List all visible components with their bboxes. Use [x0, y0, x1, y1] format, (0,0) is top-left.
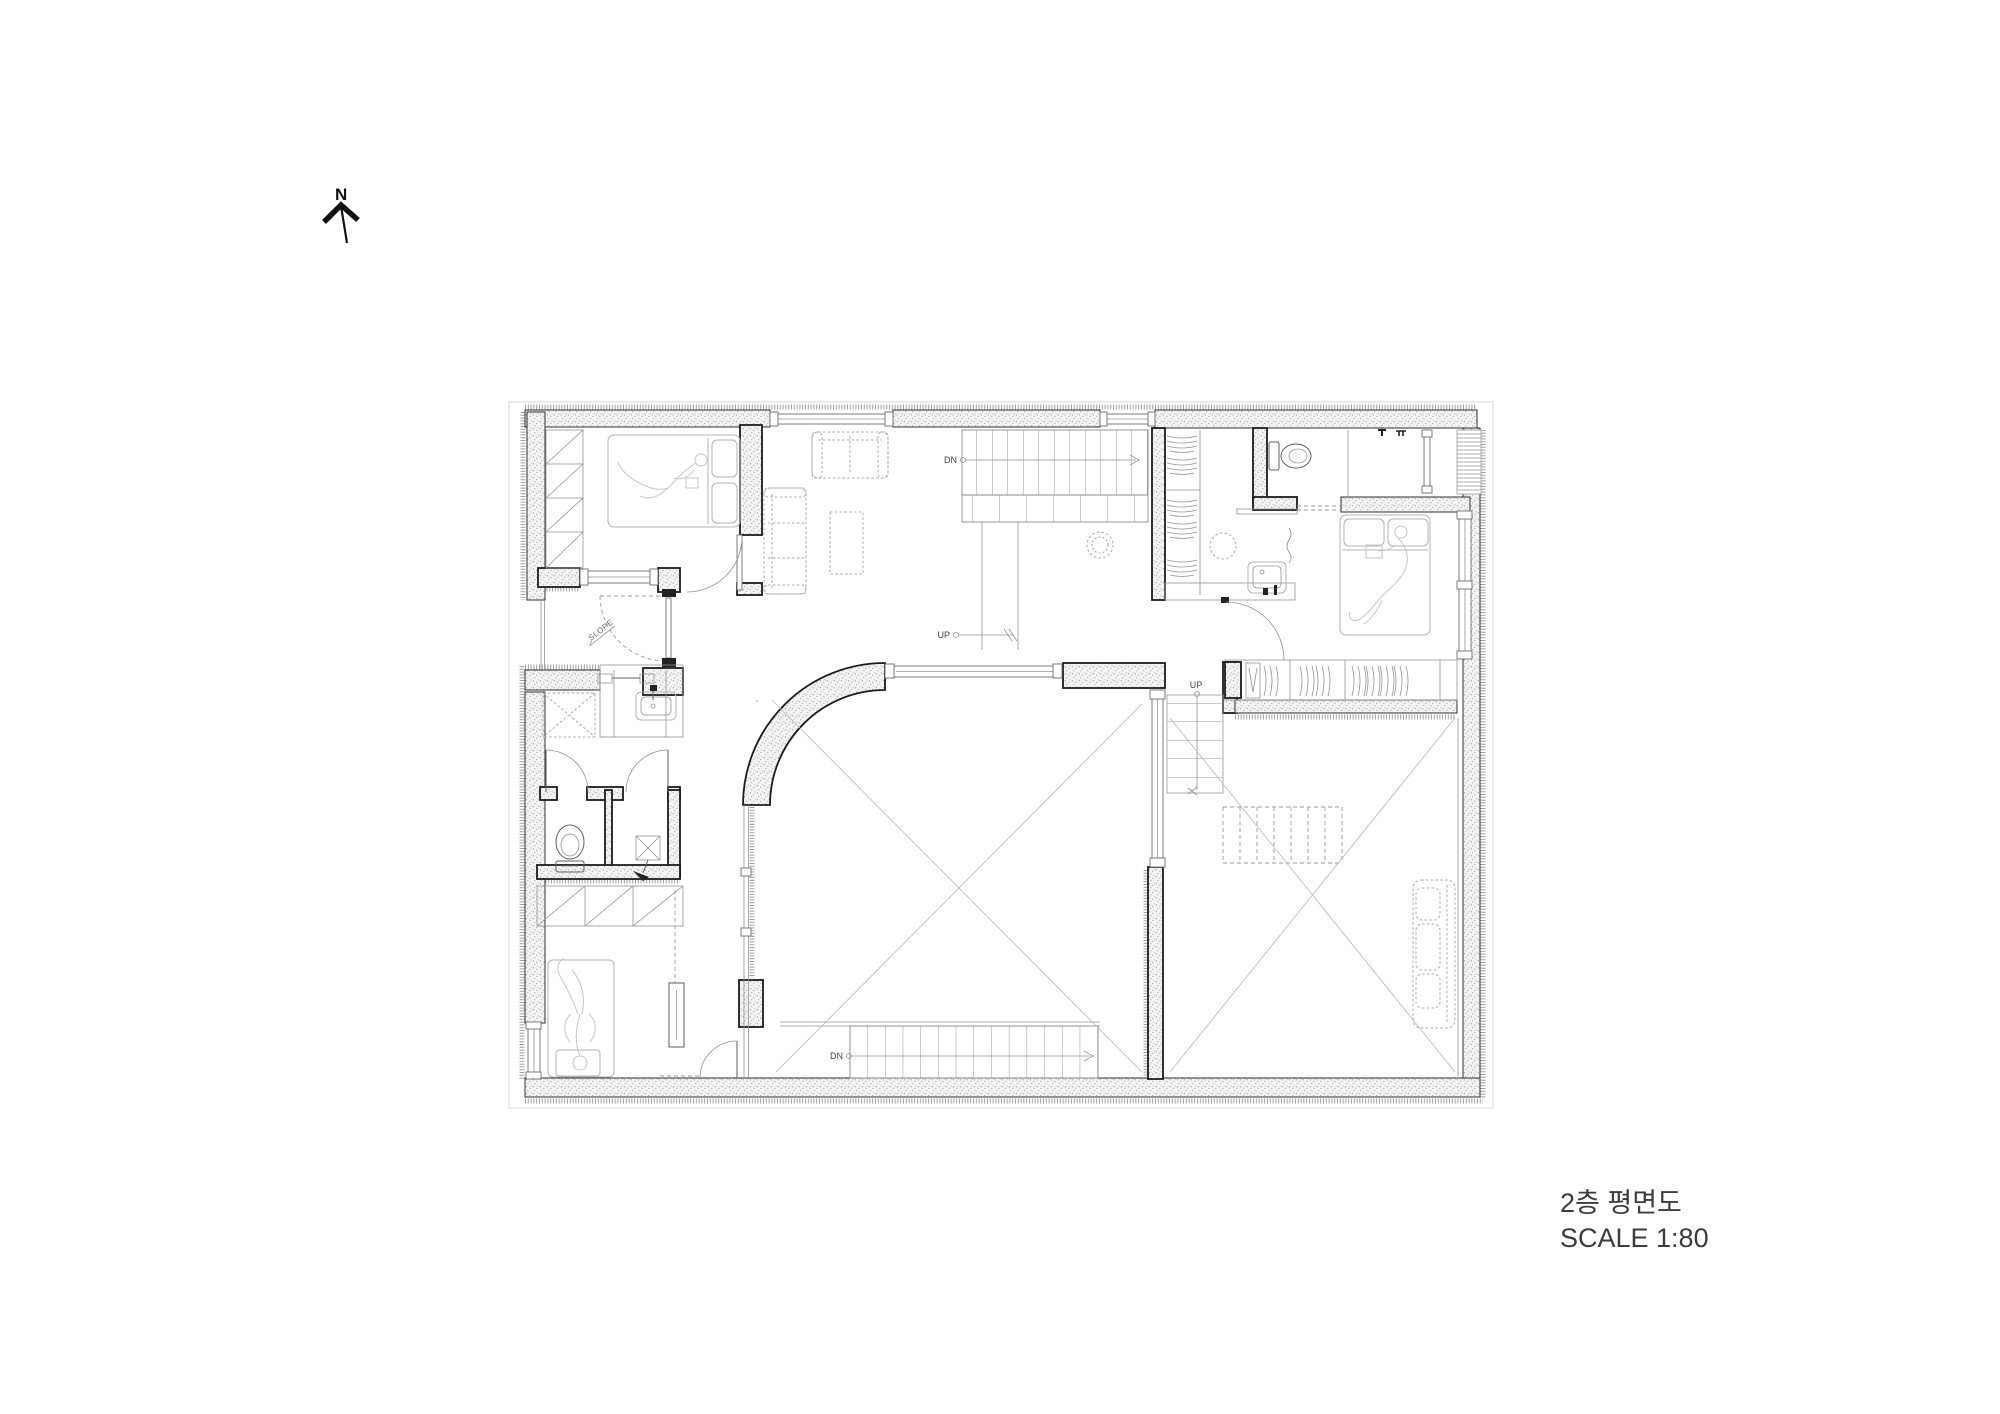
- sofa-two-seat: [812, 432, 888, 478]
- stair-main-dn-label: DN: [944, 455, 957, 465]
- person-daybed: [558, 958, 595, 1070]
- coffee-table: [830, 512, 863, 574]
- toilet-top: [1269, 442, 1311, 470]
- door-bedroom1: [687, 535, 742, 592]
- north-arrow-icon: [324, 205, 358, 243]
- shower-glass: [1422, 430, 1432, 493]
- title-block: 2층 평면도 SCALE 1:80: [1560, 1186, 1709, 1256]
- bedroom-2: [1221, 515, 1457, 700]
- stair-side-up-label: UP: [1190, 680, 1203, 690]
- shower-fittings: [1378, 430, 1406, 436]
- door-bedroom2: [1221, 597, 1284, 660]
- hanging-clothes-left: [1167, 436, 1197, 577]
- stair-projection-dashed: [1223, 807, 1342, 863]
- sofa-void-right: [1413, 880, 1455, 1028]
- stair-main: DN UP: [937, 430, 1148, 650]
- stool-closet: [1210, 533, 1236, 559]
- plant-hall: [1087, 532, 1113, 558]
- person-bedroom2: [1349, 526, 1407, 624]
- laundry-square: [543, 693, 595, 737]
- slope-label: SLOPE: [587, 618, 616, 643]
- exterior-louver: [1457, 430, 1481, 494]
- stair-bottom-dn-label: DN: [830, 1051, 843, 1061]
- stair-main-up-label: UP: [937, 630, 950, 640]
- window-left-bottom: [526, 1022, 541, 1079]
- bedroom-1: [546, 430, 742, 592]
- window-void-top: [885, 664, 1062, 678]
- floor-plan: DN UP UP DN: [500, 388, 1500, 1120]
- north-label: N: [335, 185, 347, 204]
- closet-bedroom1: [546, 430, 583, 568]
- door-shower: [626, 750, 668, 792]
- interior-walls: [537, 425, 1470, 1079]
- window-top-living: [770, 412, 893, 426]
- towel-squiggle: [1287, 528, 1291, 563]
- walk-in-closet: [1165, 430, 1295, 600]
- person-bedroom1: [618, 454, 707, 498]
- stair-bottom: DN: [780, 1022, 1100, 1078]
- drawing-scale: SCALE 1:80: [1560, 1221, 1709, 1256]
- curved-wall: [743, 663, 885, 805]
- bed-1: [608, 435, 740, 527]
- window-seat-bedroom1: [580, 569, 658, 585]
- wardrobe-bedroom2: [1225, 660, 1457, 700]
- void-room-right: [1170, 718, 1458, 1076]
- bed-2: [1340, 515, 1430, 635]
- daybed-corner: [548, 958, 737, 1078]
- drawing-title: 2층 평면도: [1560, 1186, 1709, 1221]
- window-top-hall: [1100, 412, 1155, 426]
- sofa-three-seat: [764, 488, 806, 594]
- closet-lower: [537, 886, 683, 926]
- void-room-centre: [757, 700, 1142, 1072]
- window-bedroom2: [1457, 511, 1472, 659]
- door-wc: [546, 750, 588, 792]
- north-arrow: N: [300, 170, 410, 260]
